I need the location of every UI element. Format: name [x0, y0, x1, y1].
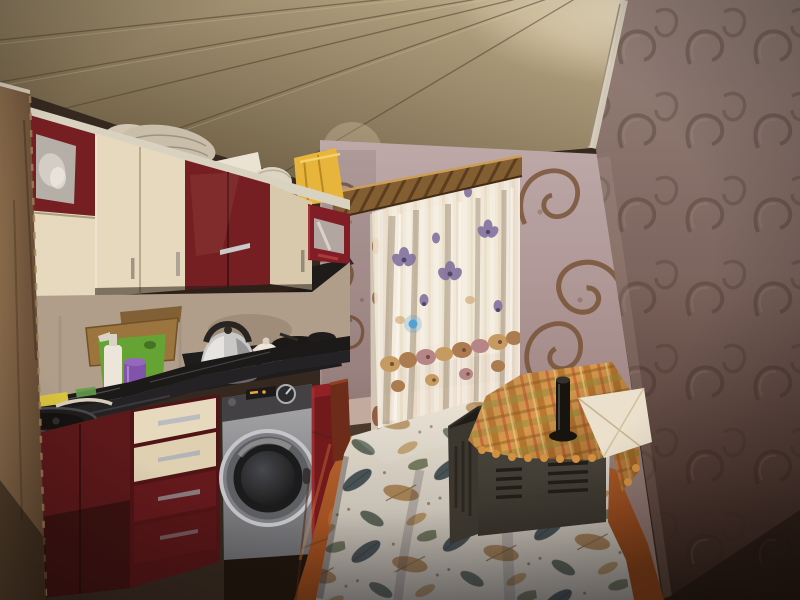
vignette	[0, 0, 800, 600]
kitchen-photo	[0, 0, 800, 600]
kitchen-scene-art	[0, 0, 800, 600]
